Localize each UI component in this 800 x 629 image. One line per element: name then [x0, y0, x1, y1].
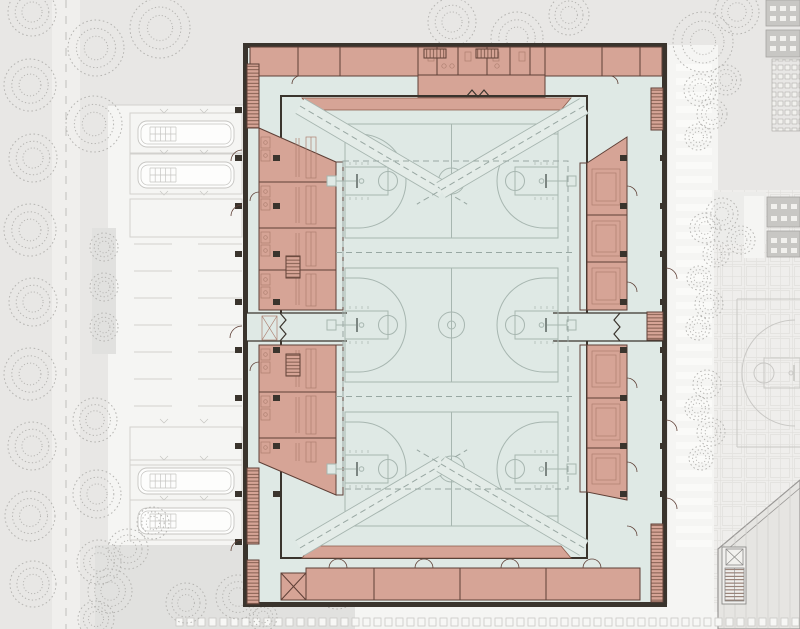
paver — [605, 618, 612, 626]
equipment-block-east-upper — [587, 137, 627, 310]
paver — [759, 618, 766, 626]
paver — [649, 618, 656, 626]
walkway-step — [676, 92, 712, 99]
paver — [473, 618, 480, 626]
paver — [308, 618, 315, 626]
sports-hall-building — [230, 46, 677, 605]
equipment-block-east-lower — [587, 345, 627, 500]
stair-icon — [725, 568, 744, 601]
walkway-step — [676, 288, 712, 295]
paver — [198, 618, 205, 626]
paver — [528, 618, 535, 626]
walkway-step — [676, 540, 712, 547]
walkway-step — [676, 106, 712, 113]
tribune-north — [302, 98, 571, 110]
column — [235, 251, 242, 257]
column — [273, 347, 280, 353]
walkway-step — [676, 512, 712, 519]
paver — [506, 618, 513, 626]
walkway-step — [676, 498, 712, 505]
column — [660, 251, 667, 257]
walkway-steps — [676, 64, 712, 547]
column — [235, 203, 242, 209]
paver — [517, 618, 524, 626]
column — [620, 203, 627, 209]
column — [660, 299, 667, 305]
elevator-icon — [726, 549, 743, 565]
paver — [682, 618, 689, 626]
paver — [495, 618, 502, 626]
paver — [220, 618, 227, 626]
column — [620, 155, 627, 161]
paver — [484, 618, 491, 626]
column — [620, 299, 627, 305]
paver — [418, 618, 425, 626]
column — [620, 395, 627, 401]
paver — [374, 618, 381, 626]
column — [273, 155, 280, 161]
column — [273, 299, 280, 305]
column — [235, 107, 242, 113]
paver — [242, 618, 249, 626]
walkway-step — [676, 190, 712, 197]
paver — [539, 618, 546, 626]
paver — [704, 618, 711, 626]
stair-icon — [247, 64, 259, 128]
column — [620, 491, 627, 497]
walkway-step — [676, 302, 712, 309]
column — [660, 203, 667, 209]
stair-icon — [424, 49, 446, 58]
paver — [297, 618, 304, 626]
column — [620, 347, 627, 353]
walkway-step — [676, 162, 712, 169]
paver — [396, 618, 403, 626]
walkway-step — [676, 526, 712, 533]
paver — [627, 618, 634, 626]
paver — [737, 618, 744, 626]
paver — [363, 618, 370, 626]
paver — [429, 618, 436, 626]
column — [235, 491, 242, 497]
walkway-step — [676, 484, 712, 491]
column — [235, 299, 242, 305]
walkway-step — [676, 78, 712, 85]
stair-icon — [247, 468, 259, 544]
paver — [561, 618, 568, 626]
column — [273, 491, 280, 497]
paver — [770, 618, 777, 626]
column — [235, 443, 242, 449]
elevator-icon — [281, 573, 306, 600]
paver — [352, 618, 359, 626]
paver — [726, 618, 733, 626]
paver — [671, 618, 678, 626]
stair-icon — [247, 560, 259, 604]
column — [235, 395, 242, 401]
paver — [440, 618, 447, 626]
column — [273, 203, 280, 209]
column — [235, 155, 242, 161]
column — [660, 155, 667, 161]
stair-icon — [651, 88, 663, 130]
walkway-step — [676, 358, 712, 365]
walkway-step — [676, 246, 712, 253]
column — [273, 395, 280, 401]
paver-band — [176, 618, 799, 626]
paver — [209, 618, 216, 626]
walkway-step — [676, 204, 712, 211]
column — [235, 347, 242, 353]
paver — [462, 618, 469, 626]
walkway-step — [676, 176, 712, 183]
column — [620, 251, 627, 257]
floor-plan-canvas — [0, 0, 800, 629]
column — [273, 443, 280, 449]
column — [620, 443, 627, 449]
column — [660, 395, 667, 401]
paver — [286, 618, 293, 626]
stair-icon — [651, 524, 663, 602]
column — [273, 251, 280, 257]
walkway-step — [676, 344, 712, 351]
paver — [550, 618, 557, 626]
paver — [660, 618, 667, 626]
walkway-step — [676, 470, 712, 477]
stair-icon — [647, 312, 663, 340]
paver — [792, 618, 799, 626]
paver — [451, 618, 458, 626]
stair-icon — [286, 256, 300, 278]
paver — [715, 618, 722, 626]
walkway-step — [676, 64, 712, 71]
paver — [748, 618, 755, 626]
walkway-step — [676, 218, 712, 225]
stair-icon — [476, 49, 498, 58]
tribune-south — [302, 546, 571, 558]
paver — [693, 618, 700, 626]
column — [660, 443, 667, 449]
walkway-step — [676, 428, 712, 435]
paver — [407, 618, 414, 626]
paver — [341, 618, 348, 626]
stair-icon — [286, 354, 300, 376]
column — [660, 347, 667, 353]
paver — [583, 618, 590, 626]
paver — [781, 618, 788, 626]
paver — [572, 618, 579, 626]
paver — [638, 618, 645, 626]
paver — [319, 618, 326, 626]
paver — [594, 618, 601, 626]
paver — [330, 618, 337, 626]
paver — [616, 618, 623, 626]
walkway-step — [676, 148, 712, 155]
paver — [385, 618, 392, 626]
column — [660, 491, 667, 497]
